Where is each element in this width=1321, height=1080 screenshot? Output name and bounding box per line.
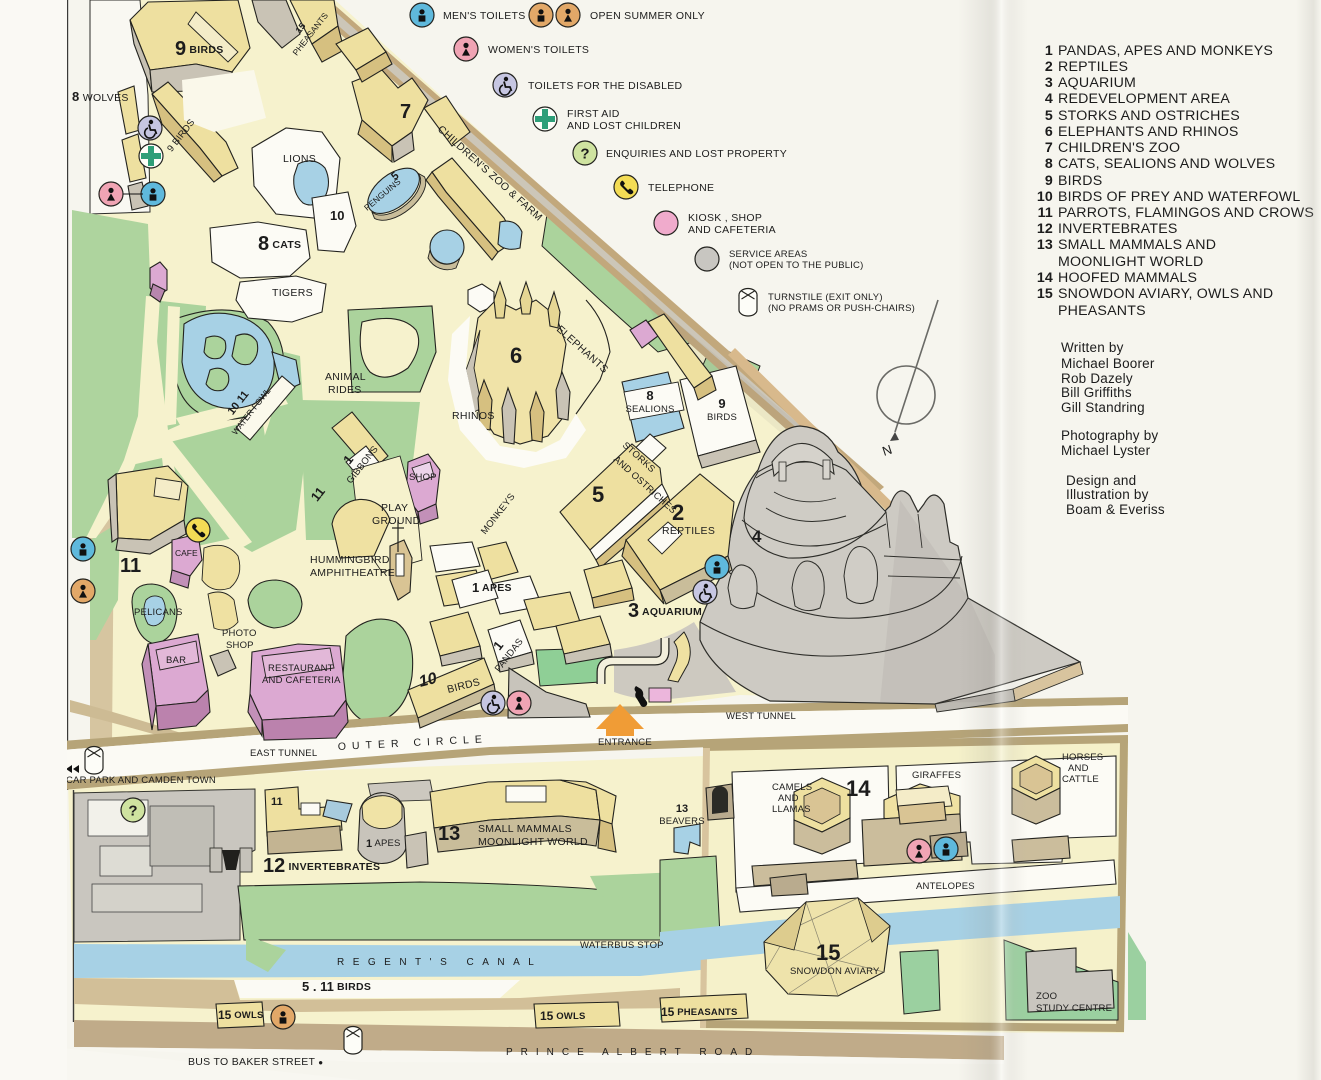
svg-text:7: 7: [400, 101, 411, 123]
svg-text:Boam & Everiss: Boam & Everiss: [1066, 502, 1165, 517]
svg-text:Design and: Design and: [1066, 473, 1136, 488]
svg-text:CATTLE: CATTLE: [1062, 774, 1099, 785]
svg-text:ELEPHANTS AND RHINOS: ELEPHANTS AND RHINOS: [1058, 124, 1239, 140]
svg-text:5: 5: [1045, 108, 1053, 124]
svg-text:HOOFED MAMMALS: HOOFED MAMMALS: [1058, 270, 1197, 286]
svg-text:SMALL MAMMALS AND: SMALL MAMMALS AND: [1058, 237, 1216, 253]
svg-text:15 PHEASANTS: 15 PHEASANTS: [661, 1005, 738, 1019]
svg-text:RIDES: RIDES: [328, 384, 362, 396]
svg-text:ENTRANCE: ENTRANCE: [598, 737, 652, 748]
svg-text:ANIMAL: ANIMAL: [325, 371, 366, 383]
svg-text:TOILETS FOR THE DISABLED: TOILETS FOR THE DISABLED: [528, 80, 683, 92]
svg-text:PARROTS, FLAMINGOS AND CROWS: PARROTS, FLAMINGOS AND CROWS: [1058, 205, 1314, 221]
svg-text:TELEPHONE: TELEPHONE: [648, 182, 714, 194]
svg-text:SERVICE AREAS: SERVICE AREAS: [729, 249, 807, 260]
svg-text:8: 8: [1045, 156, 1053, 172]
svg-text:PRINCE ALBERT ROAD: PRINCE ALBERT ROAD: [506, 1047, 760, 1058]
svg-text:RHINOS: RHINOS: [452, 410, 495, 422]
svg-text:2: 2: [672, 500, 684, 525]
svg-text:SNOWDON AVIARY, OWLS AND: SNOWDON AVIARY, OWLS AND: [1058, 286, 1273, 302]
svg-text:(NO PRAMS OR PUSH-CHAIRS): (NO PRAMS OR PUSH-CHAIRS): [768, 303, 915, 314]
svg-text:OPEN SUMMER ONLY: OPEN SUMMER ONLY: [590, 10, 705, 22]
svg-text:CHILDREN'S ZOO: CHILDREN'S ZOO: [1058, 140, 1180, 156]
svg-text:AND CAFETERIA: AND CAFETERIA: [262, 675, 341, 686]
svg-text:15 OWLS: 15 OWLS: [218, 1008, 264, 1022]
svg-text:9: 9: [1045, 173, 1053, 189]
svg-text:PELICANS: PELICANS: [134, 607, 183, 618]
svg-text:CAFE: CAFE: [175, 548, 198, 558]
svg-text:9: 9: [718, 396, 725, 411]
svg-text:REPTILES: REPTILES: [662, 525, 715, 537]
svg-text:RESTAURANT: RESTAURANT: [268, 663, 334, 674]
svg-text:4: 4: [752, 527, 762, 546]
svg-text:BIRDS OF PREY AND WATERFOWL: BIRDS OF PREY AND WATERFOWL: [1058, 189, 1300, 205]
svg-text:Michael Boorer: Michael Boorer: [1061, 356, 1155, 371]
svg-text:STORKS AND OSTRICHES: STORKS AND OSTRICHES: [1058, 108, 1240, 124]
svg-text:SNOWDON AVIARY: SNOWDON AVIARY: [790, 966, 880, 977]
svg-text:SEALIONS: SEALIONS: [625, 404, 674, 415]
svg-text:WOMEN'S TOILETS: WOMEN'S TOILETS: [488, 44, 589, 56]
svg-text:15: 15: [816, 940, 840, 965]
svg-text:(NOT OPEN TO THE PUBLIC): (NOT OPEN TO THE PUBLIC): [729, 260, 863, 271]
svg-text:SMALL MAMMALS: SMALL MAMMALS: [478, 823, 572, 835]
svg-text:MOONLIGHT WORLD: MOONLIGHT WORLD: [478, 836, 588, 848]
svg-text:CAMELS: CAMELS: [772, 782, 812, 793]
svg-text:FIRST AID: FIRST AID: [567, 108, 620, 120]
svg-text:HORSES: HORSES: [1062, 752, 1103, 763]
svg-text:AND: AND: [778, 793, 799, 804]
svg-text:8 WOLVES: 8 WOLVES: [72, 89, 129, 104]
svg-text:Michael Lyster: Michael Lyster: [1061, 443, 1151, 458]
svg-text:13: 13: [438, 823, 460, 845]
svg-text:SHOP: SHOP: [226, 640, 254, 651]
svg-text:7: 7: [1045, 140, 1053, 156]
svg-text:AMPHITHEATRE: AMPHITHEATRE: [310, 567, 395, 579]
svg-text:ZOO: ZOO: [1036, 991, 1057, 1002]
svg-text:GIRAFFES: GIRAFFES: [912, 770, 961, 781]
svg-text:REPTILES: REPTILES: [1058, 59, 1128, 75]
svg-text:BIRDS: BIRDS: [707, 412, 737, 423]
svg-text:BIRDS: BIRDS: [1058, 173, 1102, 189]
svg-text:REGENT'S CANAL: REGENT'S CANAL: [337, 957, 542, 968]
svg-text:BEAVERS: BEAVERS: [659, 816, 705, 827]
svg-text:CATS, SEALIONS AND WOLVES: CATS, SEALIONS AND WOLVES: [1058, 156, 1275, 172]
svg-text:TURNSTILE (EXIT ONLY): TURNSTILE (EXIT ONLY): [768, 292, 883, 303]
svg-text:INVERTEBRATES: INVERTEBRATES: [1058, 221, 1178, 237]
svg-text:14: 14: [1037, 270, 1053, 286]
svg-text:AND CAFETERIA: AND CAFETERIA: [688, 224, 776, 236]
svg-text:AND: AND: [1068, 763, 1089, 774]
svg-text:STUDY CENTRE: STUDY CENTRE: [1036, 1003, 1112, 1014]
svg-text:BUS TO BAKER STREET ●: BUS TO BAKER STREET ●: [188, 1056, 323, 1068]
svg-text:2: 2: [1045, 59, 1053, 75]
svg-text:15: 15: [1037, 286, 1053, 302]
svg-text:5 . 11 BIRDS: 5 . 11 BIRDS: [302, 979, 371, 994]
svg-text:LIONS: LIONS: [283, 153, 316, 165]
svg-text:1 APES: 1 APES: [366, 838, 401, 850]
svg-text:BAR: BAR: [166, 655, 186, 666]
svg-text:10: 10: [1037, 189, 1053, 205]
svg-text:MOONLIGHT WORLD: MOONLIGHT WORLD: [1058, 254, 1203, 270]
svg-text:10: 10: [330, 208, 344, 223]
svg-text:6: 6: [510, 343, 522, 368]
svg-text:4: 4: [1045, 91, 1053, 107]
svg-text:1: 1: [1045, 43, 1053, 59]
svg-text:ENQUIRIES AND LOST PROPERTY: ENQUIRIES AND LOST PROPERTY: [606, 148, 787, 160]
svg-text:11: 11: [271, 796, 283, 808]
svg-text:WATERBUS STOP: WATERBUS STOP: [580, 940, 664, 951]
svg-text:14: 14: [846, 776, 871, 801]
svg-text:MEN'S TOILETS: MEN'S TOILETS: [443, 10, 526, 22]
svg-text:AQUARIUM: AQUARIUM: [1058, 75, 1136, 91]
svg-text:5: 5: [592, 482, 604, 507]
svg-text:PHEASANTS: PHEASANTS: [1058, 303, 1146, 319]
svg-text:PLAY: PLAY: [381, 502, 408, 514]
svg-text:GROUND: GROUND: [372, 515, 421, 527]
svg-text:HUMMINGBIRD: HUMMINGBIRD: [310, 554, 390, 566]
svg-text:PANDAS, APES AND MONKEYS: PANDAS, APES AND MONKEYS: [1058, 43, 1273, 59]
svg-text:3: 3: [1045, 75, 1053, 91]
svg-text:KIOSK , SHOP: KIOSK , SHOP: [688, 212, 762, 224]
svg-text:8: 8: [646, 388, 653, 403]
svg-text:EAST TUNNEL: EAST TUNNEL: [250, 748, 317, 759]
svg-text:WEST TUNNEL: WEST TUNNEL: [726, 711, 796, 722]
svg-text:Bill Griffiths: Bill Griffiths: [1061, 385, 1132, 400]
svg-text:SHOP: SHOP: [409, 472, 437, 483]
svg-text:12: 12: [1037, 221, 1053, 237]
svg-text:6: 6: [1045, 124, 1053, 140]
svg-text:Written by: Written by: [1061, 340, 1124, 355]
svg-text:Rob Dazely: Rob Dazely: [1061, 371, 1133, 386]
svg-text:1 APES: 1 APES: [472, 580, 512, 595]
svg-text:REDEVELOPMENT AREA: REDEVELOPMENT AREA: [1058, 91, 1230, 107]
svg-text:11: 11: [1038, 205, 1053, 221]
svg-text:13: 13: [676, 803, 688, 815]
svg-text:13: 13: [1037, 237, 1053, 253]
svg-text:AND LOST CHILDREN: AND LOST CHILDREN: [567, 120, 681, 132]
svg-text:PHOTO: PHOTO: [222, 628, 257, 639]
svg-text:11: 11: [120, 555, 141, 577]
svg-text:CAR PARK AND CAMDEN TOWN: CAR PARK AND CAMDEN TOWN: [66, 775, 216, 786]
svg-text:LLAMAS: LLAMAS: [772, 804, 811, 815]
svg-text:Gill Standring: Gill Standring: [1061, 400, 1145, 415]
svg-text:15 OWLS: 15 OWLS: [540, 1009, 586, 1023]
svg-text:Photography by: Photography by: [1061, 428, 1158, 443]
svg-text:Illustration by: Illustration by: [1066, 487, 1149, 502]
svg-text:TIGERS: TIGERS: [272, 287, 313, 299]
